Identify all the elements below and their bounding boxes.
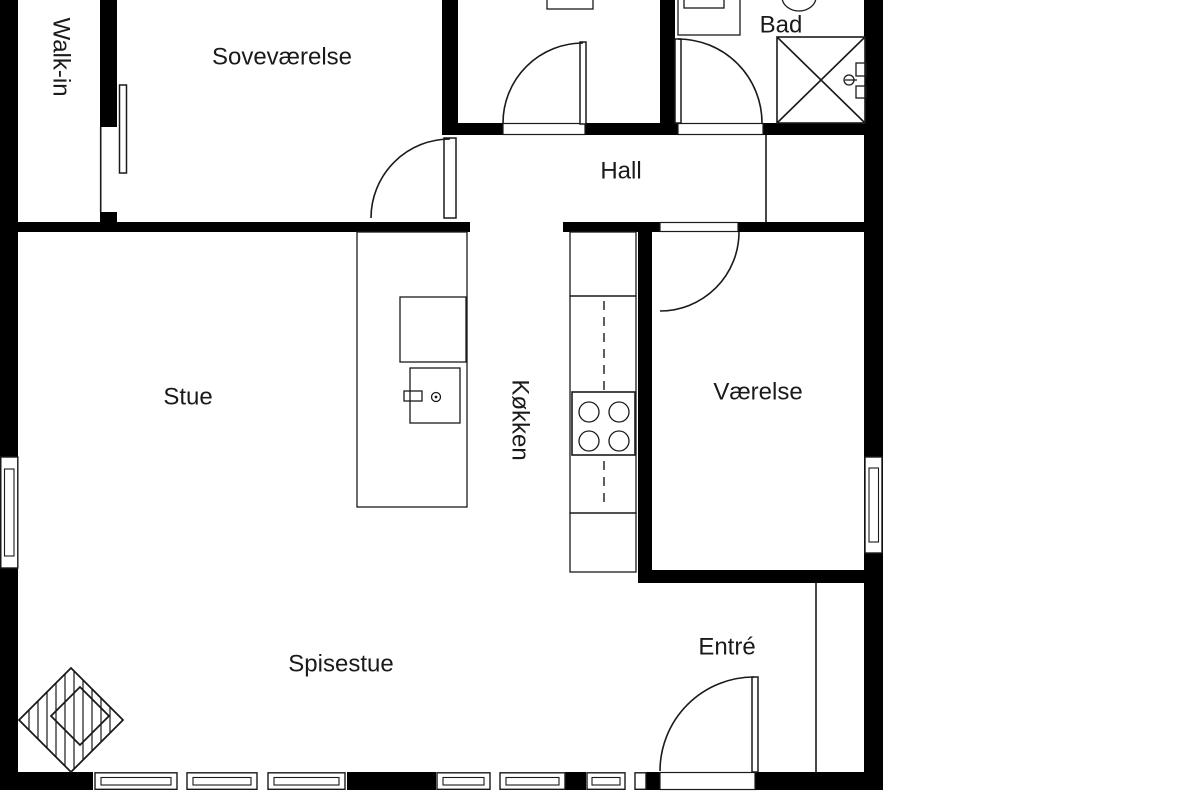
room-label-hall: Hall	[600, 158, 641, 185]
wall-outer-right	[864, 0, 883, 790]
kitchen-counter	[570, 232, 636, 572]
kitchen-island-sink-icon	[404, 368, 460, 423]
wall-sovevaerelse-midroom	[442, 0, 458, 123]
fireplace-icon	[19, 660, 123, 780]
wall-vaerelse-bottom	[638, 570, 865, 583]
kitchen-fixtures	[357, 232, 636, 572]
doors	[120, 39, 764, 790]
toilet-icon	[782, 0, 816, 11]
door-midroom	[503, 42, 586, 135]
wall-hall-top-1	[442, 123, 503, 135]
room-label-entre: Entré	[698, 634, 755, 661]
wall-hall-top-2	[585, 123, 678, 135]
wall-midroom-bad	[660, 0, 675, 123]
door-hall-sovevaerelse	[371, 138, 456, 218]
door-bad	[675, 39, 763, 135]
bathroom-fixtures	[547, 0, 866, 123]
bathroom-sink-icon	[678, 0, 740, 35]
floor-plan-page: Walk-in Soveværelse Bad Hall Stue Køkken…	[0, 0, 1200, 800]
room-label-walk-in: Walk-in	[48, 17, 75, 96]
room-label-stue: Stue	[163, 384, 212, 411]
room-label-bad: Bad	[760, 12, 803, 39]
sliding-door-walkin	[120, 85, 127, 173]
washer-icon	[547, 0, 593, 9]
wall-main-3	[738, 222, 865, 232]
stove-icon	[572, 392, 635, 455]
room-label-vaerelse: Værelse	[713, 379, 802, 406]
room-label-spisestue: Spisestue	[288, 651, 393, 678]
wall-outer-left	[0, 0, 18, 790]
window-bottom-group-2	[436, 772, 565, 790]
room-label-koekken: Køkken	[507, 379, 534, 460]
window-bottom-group-3	[586, 772, 646, 790]
wall-main-1	[0, 222, 470, 232]
door-vaerelse	[660, 223, 739, 312]
window-right-wall	[865, 457, 882, 553]
door-entre	[660, 677, 758, 790]
wall-koekken-vaerelse	[638, 232, 652, 572]
wall-hall-top-3	[763, 123, 865, 135]
window-left-wall	[1, 457, 18, 568]
floor-plan-svg: Walk-in Soveværelse Bad Hall Stue Køkken…	[0, 0, 1200, 800]
window-bottom-group-1	[93, 772, 347, 790]
room-label-sovevaerelse: Soveværelse	[212, 44, 352, 71]
kitchen-island	[357, 232, 467, 507]
wall-walkin-sovevaerelse	[100, 0, 117, 127]
wall-main-2	[563, 222, 660, 232]
